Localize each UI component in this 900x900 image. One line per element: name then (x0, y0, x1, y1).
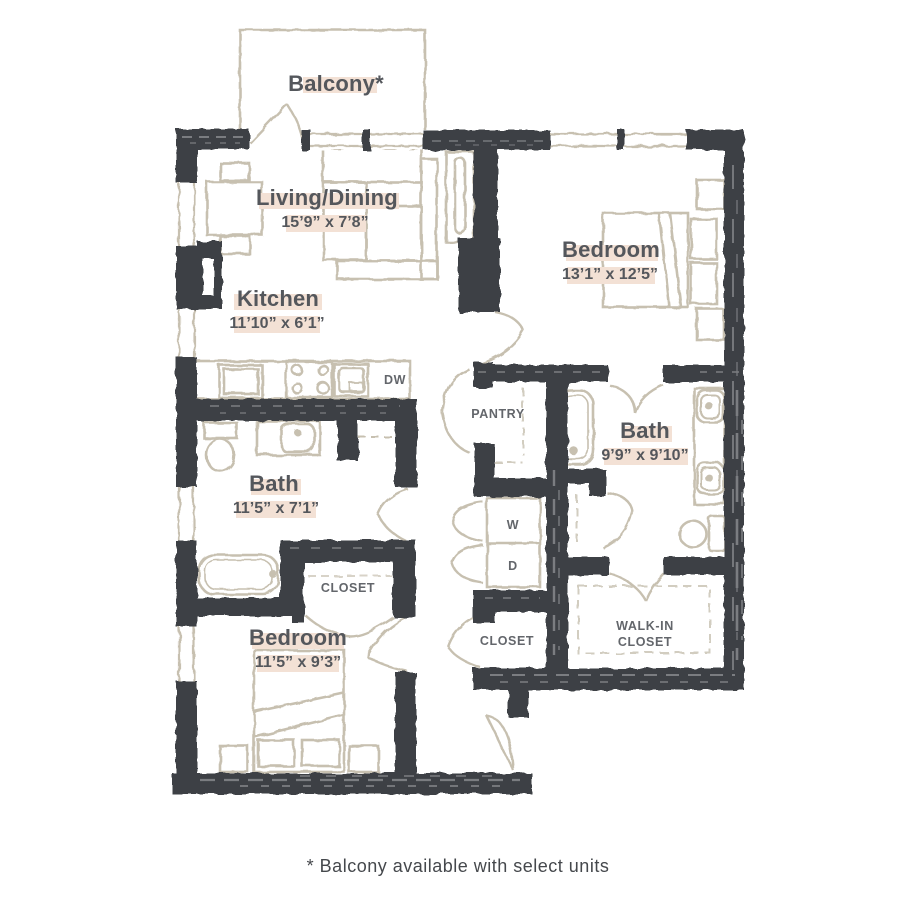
svg-text:13’1” x 12’5”: 13’1” x 12’5” (562, 266, 658, 283)
svg-text:15’9” x 7’8”: 15’9” x 7’8” (281, 214, 368, 231)
svg-text:Bath: Bath (249, 471, 299, 496)
svg-text:CLOSET: CLOSET (480, 634, 534, 648)
svg-text:D: D (508, 559, 518, 573)
svg-text:Bedroom: Bedroom (562, 237, 660, 262)
svg-text:9’9” x 9’10”: 9’9” x 9’10” (601, 447, 688, 464)
svg-text:Bedroom: Bedroom (249, 625, 347, 650)
svg-text:Bath: Bath (620, 418, 670, 443)
svg-text:CLOSET: CLOSET (321, 581, 375, 595)
svg-text:* Balcony available with selec: * Balcony available with select units (307, 856, 610, 876)
svg-text:Living/Dining: Living/Dining (256, 185, 398, 210)
svg-text:Balcony*: Balcony* (288, 71, 384, 96)
svg-text:CLOSET: CLOSET (618, 635, 672, 649)
svg-text:PANTRY: PANTRY (471, 407, 525, 421)
svg-text:Kitchen: Kitchen (237, 286, 319, 311)
svg-text:11’5” x 7’1”: 11’5” x 7’1” (233, 500, 319, 517)
svg-text:W: W (507, 518, 519, 532)
svg-text:DW: DW (384, 373, 406, 387)
svg-text:11’5” x 9’3”: 11’5” x 9’3” (255, 654, 341, 671)
svg-text:11’10” x 6’1”: 11’10” x 6’1” (229, 315, 324, 332)
svg-text:WALK-IN: WALK-IN (616, 619, 674, 633)
